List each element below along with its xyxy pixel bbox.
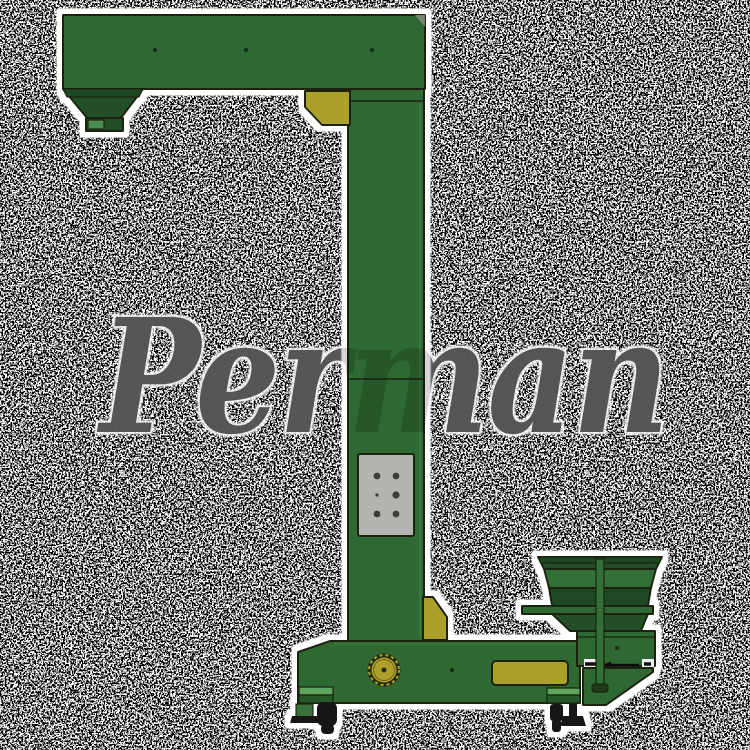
base-yellow-plate [492,661,568,685]
right-jack-base [560,716,586,726]
right-caster-wheel [550,704,563,721]
base-step-left-bottom [299,695,333,703]
pulley-hub [382,668,387,673]
left-caster-wheel [317,702,337,726]
image-canvas: Perman [0,0,750,750]
feed-hopper-flange [522,606,653,614]
left-jack-base [290,716,319,723]
base-step-right-bottom [547,695,580,703]
support-box-bolt [615,646,619,650]
base-step-right-top [547,688,580,695]
front-leg-foot [592,684,608,692]
discharge-outlet-flap [88,120,104,129]
elevator-product-graphic: Perman [0,0,750,750]
base-step-left-top [299,687,333,695]
discharge-hopper-rim [63,89,143,97]
watermark-overlay-faint: Perman [97,285,668,470]
discharge-arm [63,15,425,89]
base-bolt [450,668,454,672]
feed-hopper-front-leg [596,559,604,687]
left-jack-body [296,704,313,717]
drive-pulley [368,654,401,687]
right-caster-tread [552,719,561,732]
right-jack-stem [569,704,577,718]
left-caster-tread [321,724,334,734]
